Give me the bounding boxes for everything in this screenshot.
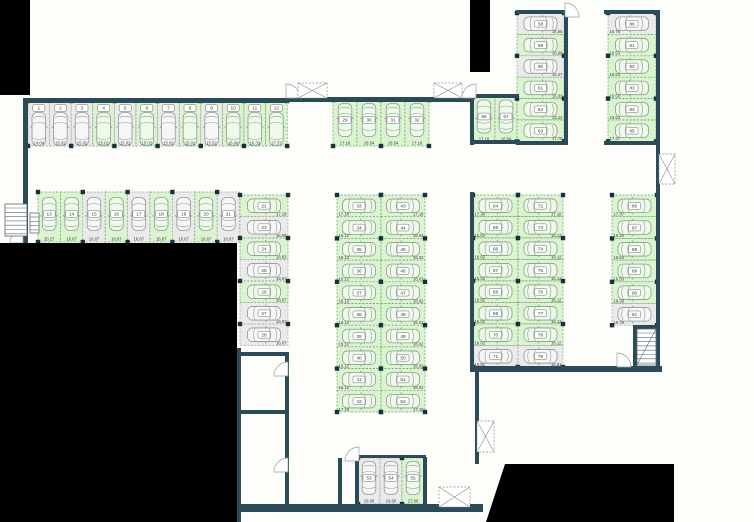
parking-stall-40[interactable]: 4016.12 (337, 347, 381, 369)
parking-stall-54[interactable]: 5416.00 (380, 458, 402, 504)
structural-column (606, 54, 610, 58)
parking-stall-34[interactable]: 3416.12 (337, 217, 381, 239)
stall-number: 11 (252, 106, 257, 112)
stall-dimension: 16.76 (614, 320, 625, 325)
crossed-shaft-icon (439, 487, 470, 507)
structural-column (379, 280, 383, 284)
structural-column (516, 236, 520, 240)
stall-dimension: 14.04 (34, 141, 45, 146)
stall-dimension: 16.02 (475, 297, 486, 302)
stall-number: 57 (503, 114, 509, 120)
parking-stall-42[interactable]: 4217.18 (337, 390, 381, 412)
structural-column (423, 280, 427, 284)
stall-number: 18 (159, 212, 165, 218)
stall-dimension: 16.07 (276, 340, 287, 345)
stall-dimension: 16.67 (276, 297, 287, 302)
structural-column (36, 190, 40, 194)
parking-stall-88[interactable]: 8816.53 (612, 238, 657, 260)
structural-column (335, 410, 339, 414)
parking-stall-79[interactable]: 7916.81 (518, 346, 563, 368)
structural-column (286, 193, 290, 197)
stall-number: 42 (356, 399, 362, 405)
stall-dimension: 16.02 (413, 277, 424, 282)
parking-stall-72[interactable]: 7217.18 (518, 195, 563, 217)
parking-stall-81[interactable]: 8116.53 (608, 34, 656, 55)
parking-stall-9[interactable]: 915.52 (201, 101, 223, 146)
parking-stall-59[interactable]: 5916.66 (517, 34, 564, 55)
parking-stall-83[interactable]: 8316.53 (608, 77, 656, 98)
parking-stall-60[interactable]: 6016.27 (517, 56, 564, 77)
parking-stall-41[interactable]: 4116.12 (337, 369, 381, 391)
stall-dimension: 16.67 (66, 237, 77, 242)
stall-group-center-right-column: 4317.184416.024516.024616.024716.024816.… (379, 193, 427, 414)
parking-stall-3[interactable]: 315.02 (71, 101, 93, 146)
stall-number: 88 (632, 247, 638, 253)
stall-number: 81 (629, 43, 635, 49)
structural-column (610, 193, 614, 197)
stall-number: 15 (91, 212, 97, 218)
stall-number: 78 (538, 332, 544, 338)
stall-dimension: 16.12 (339, 320, 350, 325)
stall-dimension: 16.53 (610, 72, 621, 77)
stall-group-upper-right-col-b: 8016.768116.538216.538316.538416.538517.… (606, 11, 658, 144)
structural-column (215, 190, 219, 194)
structural-column (335, 193, 339, 197)
parking-stall-61[interactable]: 6116.33 (517, 77, 564, 98)
parking-stall-51[interactable]: 5116.02 (381, 369, 425, 391)
structural-column (335, 280, 339, 284)
stall-dimension: 17.18 (276, 211, 287, 216)
structural-column (112, 144, 116, 148)
stall-dimension: 16.12 (339, 298, 350, 303)
stall-number: 91 (632, 312, 638, 318)
stall-dimension: 16.54 (388, 141, 399, 146)
parking-stall-69[interactable]: 6916.02 (473, 303, 518, 325)
stall-group-top-middle-row: 2917.163016.543116.543217.16 (331, 98, 431, 148)
parking-stall-50[interactable]: 5016.02 (381, 347, 425, 369)
parking-stall-36[interactable]: 3616.12 (337, 260, 381, 282)
stall-number: 87 (632, 225, 638, 231)
stall-number: 38 (356, 312, 362, 318)
parking-stall-28[interactable]: 2816.07 (240, 324, 288, 346)
structural-column (423, 323, 427, 327)
stall-number: 83 (629, 86, 635, 92)
parking-stall-84[interactable]: 8416.53 (608, 99, 656, 120)
stall-number: 65 (493, 225, 499, 231)
stall-number: 71 (493, 354, 499, 360)
structural-column (423, 366, 427, 370)
stall-dimension: 16.53 (610, 115, 621, 120)
parking-stall-75[interactable]: 7516.12 (518, 260, 563, 282)
structural-column (238, 193, 242, 197)
parking-stall-45[interactable]: 4516.02 (381, 238, 425, 260)
stall-number: 66 (493, 246, 499, 252)
stall-number: 20 (203, 212, 209, 218)
parking-stall-77[interactable]: 7716.12 (518, 303, 563, 325)
stall-dimension: 15.02 (185, 141, 196, 146)
stall-number: 90 (632, 290, 638, 296)
stall-number: 31 (390, 118, 396, 124)
stall-dimension: 16.00 (386, 499, 397, 504)
stall-dimension: 16.67 (134, 237, 145, 242)
stall-number: 29 (342, 118, 348, 124)
structural-column (238, 236, 242, 240)
stall-dimension: 17.37 (271, 141, 282, 146)
stall-number: 89 (632, 269, 638, 275)
stall-number: 77 (538, 311, 544, 317)
stall-dimension: 20.27 (44, 237, 55, 242)
stall-number: 34 (356, 225, 362, 231)
stall-number: 52 (400, 399, 406, 405)
parking-stall-86[interactable]: 8617.37 (612, 195, 657, 217)
stall-group-far-right-column: 8617.378716.538816.538916.539016.339116.… (610, 193, 659, 328)
stall-dimension: 17.18 (413, 407, 424, 412)
stall-dimension: 15.02 (120, 141, 131, 146)
structural-column (610, 323, 614, 327)
parking-stall-57[interactable]: 5716.54 (495, 97, 517, 142)
parking-stall-1[interactable]: 114.04 (28, 101, 50, 146)
stall-dimension: 16.02 (475, 319, 486, 324)
structural-column (379, 236, 383, 240)
stall-dimension: 16.65 (552, 29, 563, 34)
parking-stall-2[interactable]: 215.02 (50, 101, 72, 146)
stall-dimension: 17.16 (412, 141, 423, 146)
stall-number: 19 (181, 212, 187, 218)
stall-number: 44 (400, 225, 406, 231)
parking-stall-13[interactable]: 1320.27 (38, 192, 60, 242)
stall-number: 36 (356, 269, 362, 275)
parking-stall-78[interactable]: 7816.12 (518, 324, 563, 346)
stall-dimension: 16.02 (475, 340, 486, 345)
structural-column (561, 193, 565, 197)
parking-stall-87[interactable]: 8716.53 (612, 217, 657, 239)
stall-dimension: 16.12 (552, 115, 563, 120)
stall-number: 47 (400, 290, 406, 296)
stall-dimension: 16.67 (111, 237, 122, 242)
parking-stall-4[interactable]: 415.02 (93, 101, 115, 146)
stall-dimension: 16.02 (413, 363, 424, 368)
structural-column (610, 236, 614, 240)
parking-stall-67[interactable]: 6716.02 (473, 260, 518, 282)
stall-dimension: 16.53 (614, 255, 625, 260)
parking-stall-47[interactable]: 4716.02 (381, 282, 425, 304)
stall-dimension: 16.02 (475, 233, 486, 238)
parking-stall-55[interactable]: 5517.00 (402, 458, 424, 504)
stall-number: 55 (410, 476, 416, 482)
parking-stall-56[interactable]: 5617.16 (473, 97, 495, 142)
parking-stall-49[interactable]: 4916.02 (381, 325, 425, 347)
stall-dimension: 16.67 (156, 237, 167, 242)
parking-stall-52[interactable]: 5217.18 (381, 390, 425, 412)
stall-dimension: 16.02 (413, 320, 424, 325)
stall-number: 68 (493, 289, 499, 295)
structural-column (379, 410, 383, 414)
stall-number: 84 (629, 107, 635, 113)
structural-column (610, 280, 614, 284)
structural-column (515, 54, 519, 58)
structural-column (423, 193, 427, 197)
stall-group-mid-right-col-a: 6417.306516.026616.026716.026816.026916.… (471, 193, 520, 369)
parking-stall-11[interactable]: 1116.33 (244, 101, 266, 146)
stall-group-center-left-column: 3317.183416.123516.123616.123716.123816.… (335, 193, 383, 414)
stall-dimension: 16.08 (276, 233, 287, 238)
stall-dimension: 15.02 (163, 141, 174, 146)
parking-stall-6[interactable]: 615.02 (136, 101, 158, 146)
parking-stall-62[interactable]: 6216.12 (517, 99, 564, 120)
parking-stall-53[interactable]: 5316.00 (358, 458, 380, 504)
parking-stall-19[interactable]: 1916.67 (172, 192, 194, 242)
structural-column (516, 193, 520, 197)
structural-column (606, 96, 610, 100)
parking-stall-12[interactable]: 1217.37 (266, 101, 288, 146)
stall-dimension: 16.12 (551, 340, 562, 345)
stall-dimension: 16.12 (339, 233, 350, 238)
stall-number: 23 (261, 225, 267, 231)
structural-column (516, 279, 520, 283)
stall-number: 35 (356, 247, 362, 253)
structural-column (561, 322, 565, 326)
stall-number: 73 (538, 225, 544, 231)
stall-number: 6 (145, 106, 148, 112)
stall-dimension: 16.67 (276, 319, 287, 324)
stall-dimension: 16.76 (610, 29, 621, 34)
stall-dimension: 16.12 (551, 254, 562, 259)
stall-dimension: 16.06 (228, 141, 239, 146)
stall-dimension: 16.54 (364, 141, 375, 146)
structural-column (335, 323, 339, 327)
parking-stall-82[interactable]: 8216.53 (608, 56, 656, 77)
stall-number: 8 (189, 106, 192, 112)
parking-stall-70[interactable]: 7016.02 (473, 324, 518, 346)
stall-dimension: 16.66 (552, 51, 563, 56)
stall-number: 39 (356, 334, 362, 340)
parking-stall-24[interactable]: 2416.63 (240, 238, 288, 260)
parking-stall-65[interactable]: 6516.02 (473, 217, 518, 239)
parking-stall-21[interactable]: 2116.67 (217, 192, 239, 242)
stall-number: 17 (136, 212, 142, 218)
stall-dimension: 17.18 (339, 212, 350, 217)
parking-stall-22[interactable]: 2217.18 (240, 195, 288, 217)
stall-dimension: 17.16 (340, 141, 351, 146)
parking-stall-14[interactable]: 1416.67 (60, 192, 82, 242)
stall-number: 75 (538, 268, 544, 274)
parking-stall-33[interactable]: 3317.18 (337, 195, 381, 217)
parking-stall-10[interactable]: 1016.06 (222, 101, 244, 146)
stall-dimension: 15.02 (77, 141, 88, 146)
parking-stall-89[interactable]: 8916.53 (612, 260, 657, 282)
stall-number: 63 (538, 128, 544, 134)
parking-stall-18[interactable]: 1816.67 (150, 192, 172, 242)
crossed-shaft-icon (659, 154, 675, 184)
stall-dimension: 16.12 (339, 385, 350, 390)
stall-dimension: 16.12 (551, 319, 562, 324)
stall-number: 72 (538, 203, 544, 209)
stall-dimension: 17.18 (339, 407, 350, 412)
parking-stall-71[interactable]: 7116.81 (473, 346, 518, 368)
structural-column (285, 144, 289, 148)
structural-column (331, 144, 335, 148)
structural-column (286, 236, 290, 240)
stall-dimension: 16.12 (551, 297, 562, 302)
stall-number: 74 (538, 246, 544, 252)
stall-group-mid-right-col-b: 7217.187316.127416.127516.127616.127716.… (516, 193, 565, 369)
stall-number: 25 (261, 268, 267, 274)
stall-dimension: 16.00 (364, 499, 375, 504)
stall-number: 27 (261, 311, 267, 317)
stall-number: 45 (400, 247, 406, 253)
stall-number: 22 (261, 203, 267, 209)
structural-column (238, 322, 242, 326)
stairs-icon (30, 213, 39, 233)
stall-dimension: 16.12 (339, 363, 350, 368)
parking-stall-46[interactable]: 4616.02 (381, 260, 425, 282)
stall-dimension: 16.02 (413, 255, 424, 260)
parking-stall-80[interactable]: 8016.76 (608, 13, 656, 34)
stall-number: 4 (102, 106, 105, 112)
structural-column (561, 236, 565, 240)
structural-column (379, 144, 383, 148)
parking-stall-66[interactable]: 6616.02 (473, 238, 518, 260)
structural-column (170, 190, 174, 194)
stall-number: 50 (400, 355, 406, 361)
stairs-icon (637, 329, 656, 365)
structural-column (286, 322, 290, 326)
stall-dimension: 16.12 (339, 342, 350, 347)
stall-number: 48 (400, 312, 406, 318)
stall-dimension: 16.02 (413, 385, 424, 390)
parking-stall-25[interactable]: 2516.67 (240, 260, 288, 282)
stall-group-second-row: 1320.271416.671516.671616.671716.671816.… (36, 190, 240, 244)
stall-dimension: 15.02 (142, 141, 153, 146)
stall-number: 69 (493, 311, 499, 317)
stall-number: 28 (261, 332, 267, 338)
floor-plan-canvas: 114.04215.02315.02415.02515.02615.02715.… (0, 0, 754, 522)
parking-stall-20[interactable]: 2016.67 (195, 192, 217, 242)
stall-dimension: 16.02 (413, 298, 424, 303)
parking-stall-91[interactable]: 9116.76 (612, 304, 657, 326)
parking-stall-23[interactable]: 2316.08 (240, 217, 288, 239)
structural-column (199, 144, 203, 148)
stall-dimension: 16.02 (475, 276, 486, 281)
stall-number: 76 (538, 289, 544, 295)
stall-number: 62 (538, 107, 544, 113)
parking-stall-31[interactable]: 3116.54 (381, 100, 405, 146)
parking-stall-48[interactable]: 4816.02 (381, 304, 425, 326)
parking-stall-7[interactable]: 715.02 (158, 101, 180, 146)
structural-column (81, 190, 85, 194)
parking-stall-26[interactable]: 2616.67 (240, 281, 288, 303)
stall-dimension: 16.67 (276, 276, 287, 281)
stall-number: 54 (388, 476, 394, 482)
stall-number: 59 (538, 43, 544, 49)
crossed-shaft-icon (298, 83, 327, 98)
structural-column (423, 410, 427, 414)
structural-column (125, 190, 129, 194)
parking-stall-8[interactable]: 815.02 (179, 101, 201, 146)
parking-stall-32[interactable]: 3217.16 (405, 100, 429, 146)
stall-dimension: 17.30 (475, 211, 486, 216)
stall-dimension: 17.18 (413, 212, 424, 217)
parking-stall-76[interactable]: 7616.12 (518, 281, 563, 303)
stall-number: 53 (366, 476, 372, 482)
stall-number: 3 (81, 106, 84, 112)
stall-dimension: 16.53 (614, 277, 625, 282)
stall-number: 80 (629, 21, 635, 27)
stall-number: 14 (69, 212, 75, 218)
parking-stall-39[interactable]: 3916.12 (337, 325, 381, 347)
parking-stall-37[interactable]: 3716.12 (337, 282, 381, 304)
structural-column (379, 323, 383, 327)
parking-stall-17[interactable]: 1716.67 (128, 192, 150, 242)
stall-dimension: 15.02 (55, 141, 66, 146)
stall-dimension: 16.27 (552, 72, 563, 77)
parking-stall-35[interactable]: 3516.12 (337, 238, 381, 260)
stall-dimension: 16.63 (276, 254, 287, 259)
parking-stall-43[interactable]: 4317.18 (381, 195, 425, 217)
stall-group-top-row: 114.04215.02315.02415.02515.02615.02715.… (26, 99, 290, 148)
stairs-icon (5, 204, 27, 236)
parking-stall-15[interactable]: 1516.67 (83, 192, 105, 242)
structural-column (335, 366, 339, 370)
parking-stall-16[interactable]: 1616.67 (105, 192, 127, 242)
parking-stall-27[interactable]: 2716.67 (240, 303, 288, 325)
stall-number: 32 (414, 118, 420, 124)
stall-dimension: 16.53 (610, 51, 621, 56)
parking-stall-30[interactable]: 3016.54 (357, 100, 381, 146)
crossed-shaft-icon (434, 83, 462, 98)
stall-number: 10 (231, 106, 237, 112)
parking-stall-44[interactable]: 4416.02 (381, 217, 425, 239)
structural-column (69, 144, 73, 148)
parking-stall-29[interactable]: 2917.16 (333, 100, 357, 146)
structural-column (379, 366, 383, 370)
stall-dimension: 16.02 (413, 233, 424, 238)
structural-column (427, 144, 431, 148)
parking-stall-64[interactable]: 6417.30 (473, 195, 518, 217)
stall-dimension: 16.12 (551, 276, 562, 281)
stall-number: 46 (400, 269, 406, 275)
stall-number: 2 (59, 106, 62, 112)
parking-stall-74[interactable]: 7416.12 (518, 238, 563, 260)
stall-number: 7 (167, 106, 170, 112)
stall-number: 33 (356, 204, 362, 210)
structural-column (242, 144, 246, 148)
stall-group-bottom-middle-row: 5316.005416.005517.00 (356, 456, 424, 506)
parking-stall-63[interactable]: 6317.76 (517, 120, 564, 141)
stall-number: 67 (493, 268, 499, 274)
stall-number: 43 (400, 204, 406, 210)
parking-stall-5[interactable]: 515.02 (114, 101, 136, 146)
parking-stall-90[interactable]: 9016.33 (612, 282, 657, 304)
structural-column (286, 279, 290, 283)
stall-dimension: 16.53 (610, 93, 621, 98)
parking-stall-38[interactable]: 3816.12 (337, 304, 381, 326)
floor-plan-stage: 114.04215.02315.02415.02515.02615.02715.… (0, 0, 754, 522)
parking-stall-73[interactable]: 7316.12 (518, 217, 563, 239)
structural-column (379, 193, 383, 197)
stall-dimension: 16.02 (413, 342, 424, 347)
stall-dimension: 16.12 (339, 277, 350, 282)
stall-number: 9 (210, 106, 213, 112)
parking-stall-85[interactable]: 8517.37 (608, 120, 656, 141)
stall-dimension: 16.67 (89, 237, 100, 242)
parking-stall-58[interactable]: 5816.65 (517, 13, 564, 34)
crossed-shaft-icon (477, 421, 494, 452)
stall-number: 40 (356, 355, 362, 361)
parking-stall-68[interactable]: 6816.02 (473, 281, 518, 303)
stall-dimension: 16.33 (614, 298, 625, 303)
stall-number: 86 (632, 204, 638, 210)
